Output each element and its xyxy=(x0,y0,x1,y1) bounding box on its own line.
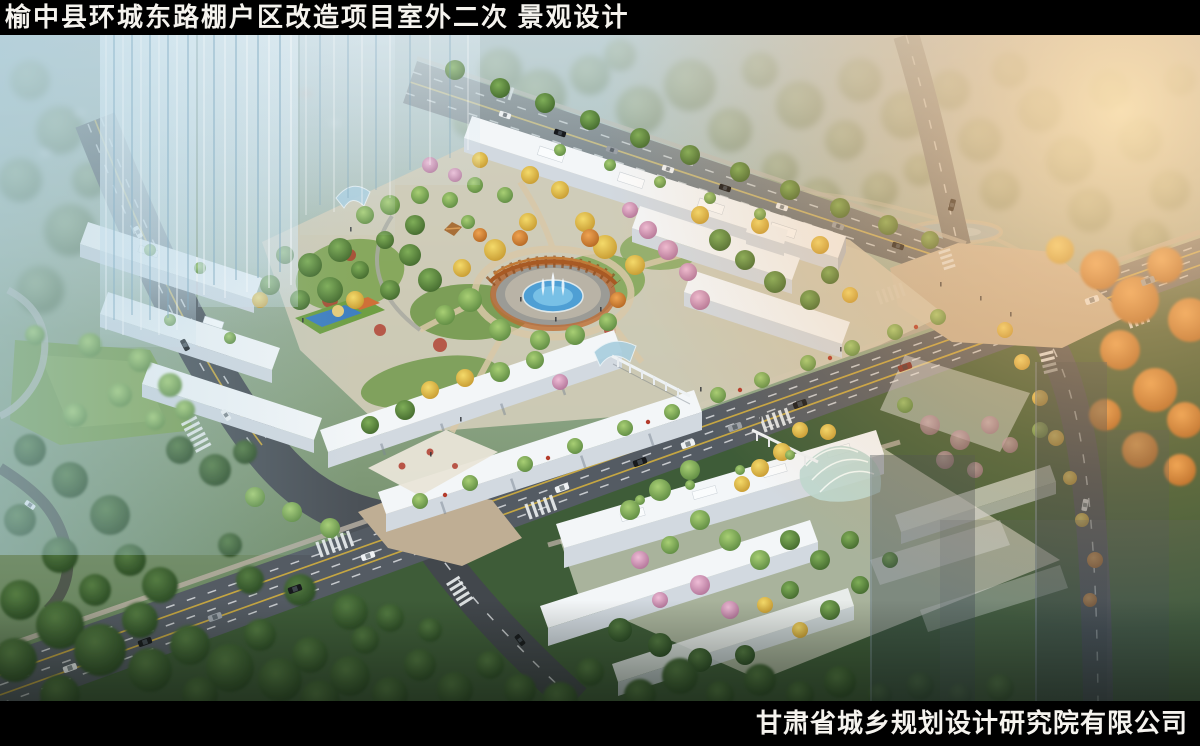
presentation-board: 榆中县环城东路棚户区改造项目室外二次 景观设计 xyxy=(0,0,1200,746)
aerial-rendering-canvas xyxy=(0,35,1200,701)
bottom-vignette xyxy=(0,600,1200,701)
aerial-rendering xyxy=(0,35,1200,701)
credit-bar: 甘肃省城乡规划设计研究院有限公司 xyxy=(0,701,1200,746)
project-title: 榆中县环城东路棚户区改造项目室外二次 景观设计 xyxy=(0,0,1200,35)
company-name: 甘肃省城乡规划设计研究院有限公司 xyxy=(0,701,1200,746)
title-bar: 榆中县环城东路棚户区改造项目室外二次 景观设计 xyxy=(0,0,1200,35)
